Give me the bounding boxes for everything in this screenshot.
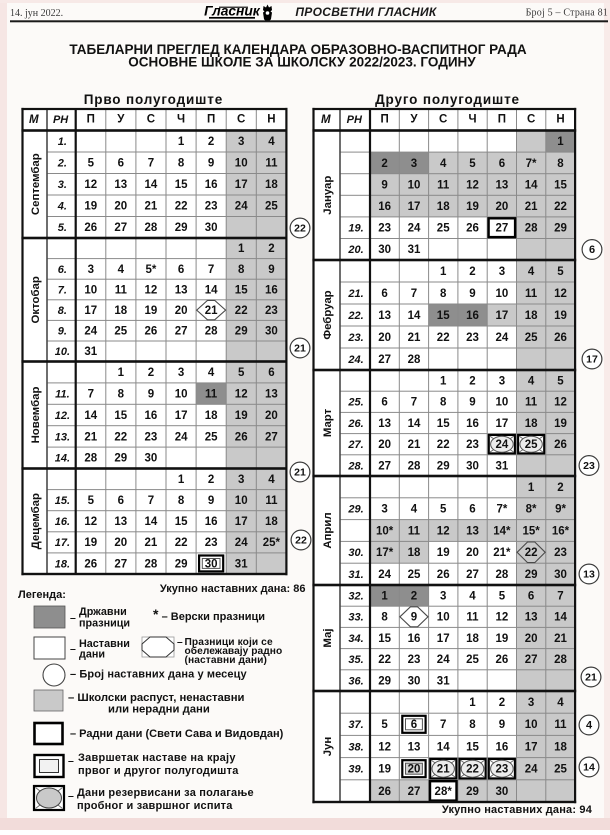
svg-text:21: 21 — [408, 439, 421, 451]
svg-text:(наставни дани): (наставни дани) — [185, 655, 267, 666]
svg-text:15: 15 — [554, 179, 567, 191]
svg-text:31: 31 — [235, 558, 248, 570]
svg-text:–: – — [68, 790, 74, 802]
svg-text:7: 7 — [88, 389, 94, 401]
svg-text:3: 3 — [411, 158, 417, 170]
svg-text:4: 4 — [268, 474, 275, 486]
svg-text:17: 17 — [175, 410, 188, 422]
svg-text:Државни: Државни — [79, 606, 127, 618]
svg-text:Ч: Ч — [177, 114, 185, 126]
svg-text:14: 14 — [408, 418, 421, 430]
svg-text:5: 5 — [88, 158, 95, 170]
svg-text:5.: 5. — [58, 222, 67, 234]
svg-text:9.: 9. — [58, 326, 67, 338]
svg-text:1: 1 — [178, 474, 185, 486]
svg-text:30: 30 — [145, 453, 158, 465]
svg-text:Укупно наставних дана: 86: Укупно наставних дана: 86 — [160, 583, 306, 595]
svg-text:22: 22 — [466, 764, 479, 776]
svg-text:26: 26 — [378, 786, 391, 798]
svg-text:19: 19 — [466, 201, 479, 213]
svg-text:15: 15 — [466, 741, 479, 753]
svg-text:17: 17 — [496, 418, 509, 430]
svg-text:16: 16 — [378, 201, 391, 213]
svg-text:34.: 34. — [348, 633, 363, 645]
svg-text:8: 8 — [238, 264, 245, 276]
svg-text:1: 1 — [557, 136, 564, 148]
svg-text:7.: 7. — [58, 284, 67, 296]
svg-text:– Верски празници: – Верски празници — [162, 611, 265, 623]
svg-text:22: 22 — [235, 305, 248, 317]
svg-text:29: 29 — [175, 558, 188, 570]
svg-text:ОСНОВНЕ ШКОЛЕ ЗА ШКОЛСКУ 2022/: ОСНОВНЕ ШКОЛЕ ЗА ШКОЛСКУ 2022/2023. ГОДИ… — [128, 55, 476, 70]
svg-text:*: * — [153, 606, 159, 622]
svg-text:37.: 37. — [348, 719, 363, 731]
svg-text:22: 22 — [294, 223, 306, 235]
svg-text:Октобар: Октобар — [30, 276, 42, 323]
svg-text:25: 25 — [466, 654, 479, 666]
svg-text:15.: 15. — [55, 495, 70, 507]
svg-text:24: 24 — [496, 439, 509, 451]
svg-text:7: 7 — [411, 288, 417, 300]
svg-text:27: 27 — [378, 354, 391, 366]
svg-text:9: 9 — [208, 495, 214, 507]
svg-text:25.: 25. — [347, 397, 363, 409]
svg-text:29: 29 — [114, 453, 127, 465]
svg-text:Децембар: Децембар — [30, 493, 42, 549]
svg-text:21: 21 — [408, 332, 421, 344]
svg-text:10: 10 — [408, 179, 421, 191]
svg-text:39.: 39. — [348, 764, 363, 776]
svg-text:2: 2 — [469, 266, 475, 278]
svg-text:16: 16 — [205, 179, 218, 191]
svg-text:26: 26 — [554, 332, 567, 344]
svg-text:8: 8 — [440, 288, 447, 300]
svg-text:19: 19 — [554, 310, 567, 322]
svg-text:24: 24 — [437, 654, 450, 666]
svg-text:22: 22 — [378, 654, 391, 666]
svg-text:25: 25 — [408, 569, 421, 581]
svg-text:Број 5 – Страна 81: Број 5 – Страна 81 — [526, 8, 608, 19]
svg-text:13.: 13. — [55, 431, 70, 443]
svg-text:27: 27 — [175, 326, 188, 338]
svg-text:4: 4 — [586, 720, 593, 732]
svg-text:У: У — [117, 114, 125, 126]
svg-text:21: 21 — [205, 305, 218, 317]
svg-text:25: 25 — [525, 332, 538, 344]
svg-text:19: 19 — [496, 633, 509, 645]
svg-text:25: 25 — [525, 439, 538, 451]
svg-text:3: 3 — [528, 697, 534, 709]
svg-text:15: 15 — [437, 418, 450, 430]
svg-text:20: 20 — [378, 439, 391, 451]
svg-text:13: 13 — [408, 741, 421, 753]
svg-text:30: 30 — [205, 222, 218, 234]
svg-text:6: 6 — [381, 397, 387, 409]
svg-text:Укупно наставних дана: 94: Укупно наставних дана: 94 — [442, 804, 593, 816]
svg-text:18: 18 — [265, 516, 278, 528]
svg-text:18.: 18. — [55, 558, 70, 570]
svg-text:21*: 21* — [493, 547, 511, 559]
svg-text:21: 21 — [145, 201, 158, 213]
svg-text:12: 12 — [145, 284, 158, 296]
svg-text:30: 30 — [265, 326, 278, 338]
svg-text:7: 7 — [411, 397, 417, 409]
svg-text:–: – — [70, 643, 76, 655]
svg-text:ПРОСВЕТНИ ГЛАСНИК: ПРОСВЕТНИ ГЛАСНИК — [295, 5, 438, 19]
svg-text:18: 18 — [466, 633, 479, 645]
svg-text:27: 27 — [378, 460, 391, 472]
svg-text:19: 19 — [84, 201, 97, 213]
svg-text:29: 29 — [437, 460, 450, 472]
svg-text:2: 2 — [469, 376, 475, 388]
svg-text:3: 3 — [499, 266, 505, 278]
svg-text:–: – — [177, 637, 183, 648]
svg-text:6: 6 — [118, 158, 124, 170]
svg-text:5: 5 — [88, 495, 95, 507]
svg-text:Јун: Јун — [322, 737, 334, 757]
svg-text:– Број наставних дана у месецу: – Број наставних дана у месецу — [70, 669, 247, 681]
svg-text:7*: 7* — [496, 504, 507, 516]
svg-text:28: 28 — [496, 569, 509, 581]
svg-text:30: 30 — [554, 569, 567, 581]
svg-text:7: 7 — [440, 719, 446, 731]
svg-text:23: 23 — [408, 654, 421, 666]
svg-text:4: 4 — [528, 376, 535, 388]
svg-text:21.: 21. — [347, 288, 363, 300]
svg-text:12: 12 — [378, 741, 391, 753]
svg-text:21: 21 — [554, 633, 567, 645]
svg-text:1: 1 — [440, 266, 447, 278]
svg-text:27.: 27. — [347, 439, 363, 451]
svg-text:10: 10 — [84, 284, 97, 296]
svg-text:11: 11 — [554, 719, 567, 731]
svg-text:11.: 11. — [55, 389, 69, 401]
svg-text:2: 2 — [148, 367, 154, 379]
svg-text:3: 3 — [238, 474, 244, 486]
svg-text:Новембар: Новембар — [30, 387, 42, 444]
svg-text:8.: 8. — [58, 305, 67, 317]
svg-text:26: 26 — [437, 569, 450, 581]
svg-text:12: 12 — [554, 288, 567, 300]
svg-text:1: 1 — [528, 482, 535, 494]
svg-text:12: 12 — [84, 516, 97, 528]
svg-text:22: 22 — [295, 535, 307, 547]
svg-text:17.: 17. — [55, 537, 70, 549]
svg-text:23: 23 — [554, 547, 567, 559]
svg-text:30.: 30. — [348, 547, 363, 559]
svg-text:22: 22 — [554, 201, 567, 213]
svg-text:25*: 25* — [263, 537, 281, 549]
svg-text:28: 28 — [408, 354, 421, 366]
svg-text:27: 27 — [466, 569, 479, 581]
svg-text:М: М — [321, 114, 331, 126]
svg-text:8: 8 — [469, 719, 476, 731]
svg-text:28.: 28. — [347, 460, 363, 472]
svg-text:26: 26 — [84, 222, 97, 234]
svg-text:3: 3 — [499, 376, 505, 388]
svg-text:С: С — [439, 114, 447, 126]
svg-text:Н: Н — [267, 114, 275, 126]
svg-text:25: 25 — [265, 201, 278, 213]
svg-text:8: 8 — [440, 397, 447, 409]
svg-text:16.: 16. — [55, 516, 70, 528]
svg-text:27: 27 — [114, 558, 127, 570]
svg-text:или нерадни дани: или нерадни дани — [108, 704, 210, 716]
svg-text:3: 3 — [381, 504, 387, 516]
svg-text:7*: 7* — [526, 158, 537, 170]
svg-text:28*: 28* — [435, 786, 453, 798]
svg-text:21: 21 — [84, 431, 97, 443]
svg-text:15*: 15* — [522, 525, 540, 537]
svg-text:26: 26 — [554, 439, 567, 451]
svg-text:9*: 9* — [555, 504, 566, 516]
svg-text:11: 11 — [408, 525, 421, 537]
svg-text:16: 16 — [466, 310, 479, 322]
svg-text:12.: 12. — [55, 410, 70, 422]
svg-text:35.: 35. — [348, 654, 363, 666]
svg-text:6: 6 — [589, 244, 595, 256]
svg-text:празници: празници — [79, 618, 130, 630]
svg-text:29: 29 — [235, 326, 248, 338]
svg-text:2: 2 — [268, 243, 274, 255]
svg-text:27: 27 — [408, 786, 421, 798]
svg-text:22: 22 — [525, 547, 538, 559]
svg-text:9: 9 — [148, 389, 154, 401]
svg-text:4: 4 — [528, 266, 535, 278]
svg-text:2: 2 — [381, 158, 387, 170]
svg-text:Март: Март — [322, 408, 334, 437]
svg-text:20: 20 — [525, 633, 538, 645]
svg-text:П: П — [380, 114, 388, 126]
svg-text:24: 24 — [496, 332, 509, 344]
svg-text:10: 10 — [437, 612, 450, 624]
svg-text:24: 24 — [84, 326, 97, 338]
svg-text:18: 18 — [525, 418, 538, 430]
svg-text:15: 15 — [114, 410, 127, 422]
svg-text:23: 23 — [583, 460, 595, 472]
svg-text:1.: 1. — [58, 136, 67, 148]
svg-text:20: 20 — [265, 410, 278, 422]
svg-text:14: 14 — [525, 179, 538, 191]
svg-text:5: 5 — [238, 367, 245, 379]
svg-text:21: 21 — [437, 764, 450, 776]
svg-text:28: 28 — [554, 654, 567, 666]
svg-text:24: 24 — [378, 569, 391, 581]
svg-text:28: 28 — [145, 222, 158, 234]
svg-text:5: 5 — [469, 158, 476, 170]
svg-text:22: 22 — [437, 439, 450, 451]
svg-text:5: 5 — [557, 266, 564, 278]
svg-text:Фебруар: Фебруар — [322, 290, 334, 339]
svg-text:24: 24 — [235, 201, 248, 213]
svg-text:12: 12 — [235, 389, 248, 401]
svg-text:32.: 32. — [348, 591, 363, 603]
svg-text:18: 18 — [205, 410, 218, 422]
svg-text:29.: 29. — [347, 504, 363, 516]
svg-text:2: 2 — [208, 474, 214, 486]
svg-text:21: 21 — [585, 672, 597, 684]
svg-text:6: 6 — [178, 264, 184, 276]
svg-text:3: 3 — [178, 367, 184, 379]
svg-text:22: 22 — [175, 201, 188, 213]
svg-text:– Школски распуст, ненаставни: – Школски распуст, ненаставни — [68, 692, 245, 704]
svg-text:6: 6 — [469, 504, 475, 516]
svg-text:13: 13 — [265, 389, 278, 401]
svg-text:14: 14 — [554, 612, 567, 624]
svg-text:М: М — [29, 114, 39, 126]
svg-text:11: 11 — [205, 389, 218, 401]
svg-text:6: 6 — [268, 367, 274, 379]
svg-text:14. јун 2022.: 14. јун 2022. — [10, 8, 63, 19]
svg-text:10: 10 — [525, 719, 538, 731]
svg-text:3: 3 — [440, 591, 446, 603]
svg-text:16: 16 — [265, 284, 278, 296]
svg-text:20: 20 — [114, 201, 127, 213]
svg-text:Дани резервисани за полагање: Дани резервисани за полагање — [77, 787, 254, 799]
svg-text:7: 7 — [557, 591, 563, 603]
svg-text:25: 25 — [114, 326, 127, 338]
svg-text:РН: РН — [347, 114, 363, 126]
svg-text:Април: Април — [322, 512, 334, 548]
svg-text:13: 13 — [496, 179, 509, 191]
svg-text:9: 9 — [208, 158, 214, 170]
svg-text:18: 18 — [554, 741, 567, 753]
svg-text:12: 12 — [437, 525, 450, 537]
svg-text:28: 28 — [525, 223, 538, 235]
svg-text:31: 31 — [496, 460, 509, 472]
svg-text:15: 15 — [175, 179, 188, 191]
svg-text:27: 27 — [525, 654, 538, 666]
svg-text:П: П — [87, 114, 95, 126]
svg-text:18: 18 — [437, 201, 450, 213]
svg-text:17: 17 — [586, 354, 598, 366]
svg-text:25: 25 — [205, 431, 218, 443]
svg-text:Прво полугодиште: Прво полугодиште — [84, 92, 223, 107]
svg-text:30: 30 — [466, 460, 479, 472]
svg-text:9: 9 — [469, 397, 475, 409]
svg-text:13: 13 — [378, 310, 391, 322]
svg-text:1: 1 — [440, 376, 447, 388]
svg-text:23: 23 — [466, 439, 479, 451]
svg-text:4: 4 — [411, 504, 418, 516]
svg-text:33.: 33. — [348, 612, 363, 624]
svg-text:24: 24 — [408, 223, 421, 235]
svg-text:14: 14 — [205, 284, 218, 296]
svg-text:9: 9 — [499, 719, 505, 731]
svg-text:22: 22 — [114, 431, 127, 443]
svg-text:24.: 24. — [347, 354, 363, 366]
svg-text:11: 11 — [525, 397, 538, 409]
svg-text:2: 2 — [411, 591, 417, 603]
svg-text:24: 24 — [235, 537, 248, 549]
svg-text:8: 8 — [118, 389, 125, 401]
svg-text:31: 31 — [408, 244, 421, 256]
svg-text:Мај: Мај — [322, 628, 334, 647]
svg-text:15: 15 — [175, 516, 188, 528]
svg-text:4: 4 — [208, 367, 215, 379]
svg-text:17: 17 — [437, 633, 450, 645]
svg-text:29: 29 — [175, 222, 188, 234]
svg-text:17: 17 — [84, 305, 97, 317]
svg-text:17*: 17* — [376, 547, 394, 559]
svg-text:14: 14 — [437, 741, 450, 753]
svg-text:19: 19 — [554, 418, 567, 430]
svg-text:18: 18 — [114, 305, 127, 317]
svg-text:13: 13 — [175, 284, 188, 296]
svg-text:4.: 4. — [57, 201, 67, 213]
svg-text:19: 19 — [378, 764, 391, 776]
svg-text:12: 12 — [466, 179, 479, 191]
svg-text:13: 13 — [525, 612, 538, 624]
svg-text:29: 29 — [554, 223, 567, 235]
svg-text:Гласник: Гласник — [204, 4, 261, 19]
svg-text:8: 8 — [381, 612, 388, 624]
svg-text:28: 28 — [145, 558, 158, 570]
svg-text:19: 19 — [235, 410, 248, 422]
svg-text:21: 21 — [525, 201, 538, 213]
svg-text:7: 7 — [148, 495, 154, 507]
svg-text:4: 4 — [268, 136, 275, 148]
svg-text:Завршетак наставе на крају: Завршетак наставе на крају — [78, 752, 236, 764]
svg-text:20: 20 — [466, 547, 479, 559]
svg-text:дани: дани — [79, 649, 105, 661]
svg-text:С: С — [147, 114, 155, 126]
svg-text:20: 20 — [378, 332, 391, 344]
svg-text:22: 22 — [175, 537, 188, 549]
svg-text:11: 11 — [265, 495, 278, 507]
svg-text:– Радни дани (Свети Сава и Вид: – Радни дани (Свети Сава и Видовдан) — [70, 728, 284, 740]
svg-text:6: 6 — [411, 719, 417, 731]
svg-text:30: 30 — [408, 675, 421, 687]
svg-text:21: 21 — [294, 467, 306, 479]
svg-text:11: 11 — [525, 288, 538, 300]
svg-text:5: 5 — [381, 719, 388, 731]
svg-text:21: 21 — [145, 537, 158, 549]
svg-text:5: 5 — [557, 376, 564, 388]
svg-text:1: 1 — [238, 243, 245, 255]
svg-text:14.: 14. — [55, 453, 70, 465]
svg-text:28: 28 — [84, 453, 97, 465]
svg-text:25: 25 — [437, 223, 450, 235]
svg-text:17: 17 — [235, 516, 248, 528]
svg-text:19: 19 — [84, 537, 97, 549]
svg-text:20: 20 — [114, 537, 127, 549]
svg-text:18: 18 — [525, 310, 538, 322]
svg-text:26: 26 — [84, 558, 97, 570]
svg-text:Септембар: Септембар — [30, 153, 42, 215]
svg-text:23: 23 — [205, 201, 218, 213]
svg-text:29: 29 — [466, 786, 479, 798]
svg-text:1: 1 — [178, 136, 185, 148]
svg-text:8: 8 — [557, 158, 564, 170]
svg-text:5*: 5* — [145, 264, 156, 276]
svg-text:1: 1 — [469, 697, 476, 709]
svg-text:24: 24 — [175, 431, 188, 443]
svg-text:15: 15 — [378, 633, 391, 645]
svg-text:2: 2 — [557, 482, 563, 494]
svg-text:17: 17 — [496, 310, 509, 322]
svg-text:1: 1 — [381, 591, 388, 603]
svg-text:23: 23 — [265, 305, 278, 317]
svg-text:П: П — [207, 114, 215, 126]
svg-text:10: 10 — [496, 397, 509, 409]
svg-text:14*: 14* — [493, 525, 511, 537]
svg-text:2.: 2. — [57, 158, 67, 170]
svg-text:31: 31 — [84, 346, 97, 358]
svg-text:14: 14 — [145, 179, 158, 191]
svg-text:26.: 26. — [347, 418, 363, 430]
svg-text:28: 28 — [408, 460, 421, 472]
